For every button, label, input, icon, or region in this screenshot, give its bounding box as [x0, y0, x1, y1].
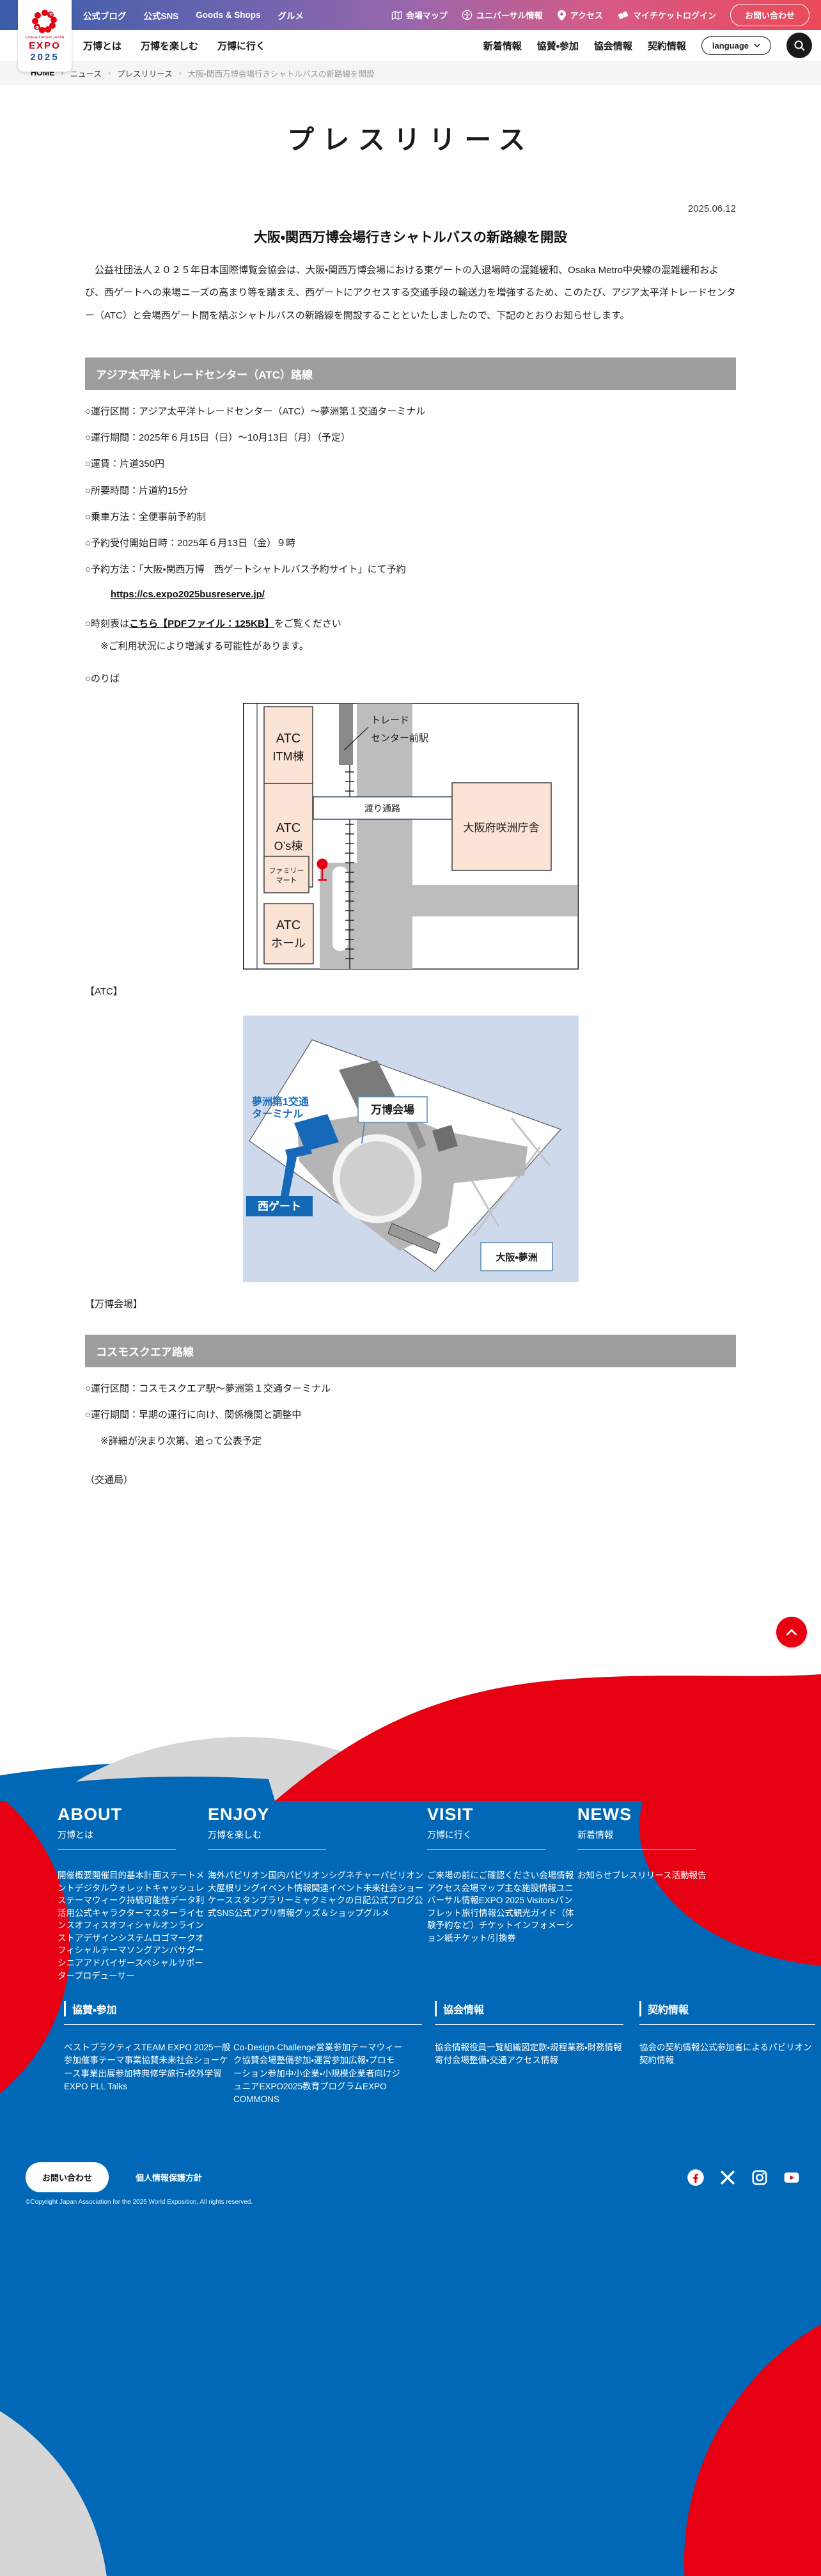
footer-link[interactable]: デザインシステム: [84, 1933, 153, 1943]
footer-link[interactable]: ミャクミャクの日記: [293, 1896, 371, 1905]
atc-area-map: 渡り通路 ATC ITM棟 ATC O’s棟 ファミリー マート ATC ホール…: [243, 703, 579, 970]
timetable-suffix: をご覧ください: [274, 618, 341, 629]
article-date: 2025.06.12: [85, 203, 736, 214]
atc-hall-label: ATC: [276, 918, 301, 932]
myaku-myaku-logo-icon: [32, 9, 58, 35]
route-detail-item: ○乗車方法：全便事前予約制: [85, 510, 736, 524]
atc-map-figure: 渡り通路 ATC ITM棟 ATC O’s棟 ファミリー マート ATC ホール…: [243, 703, 579, 973]
breadcrumb-separator: ›: [108, 68, 111, 77]
footer-main: ABOUT 万博とは 開催概要開催目的基本計画ステートメントデジタルウォレットキ…: [0, 1801, 821, 2576]
contact-button[interactable]: お問い合わせ: [730, 4, 809, 26]
divider: [577, 1850, 696, 1850]
timetable-prefix: ○時刻表は: [85, 618, 129, 629]
terminal-label: ターミナル: [252, 1108, 303, 1120]
footer-link[interactable]: 業務・財務情報: [567, 2043, 622, 2052]
footer-link[interactable]: 営業参加: [316, 2043, 350, 2052]
footer-link[interactable]: Co-Design-Challenge: [233, 2043, 316, 2052]
footer-link[interactable]: 会場整備・交通アクセス情報: [452, 2055, 558, 2065]
main-nav-link[interactable]: 新着情報: [483, 39, 522, 52]
divider: [208, 1850, 326, 1850]
footer-column-title: NEWS: [577, 1805, 718, 1825]
instagram-icon[interactable]: [751, 2169, 769, 2187]
cosmo-note: ※詳細が決まり次第、追って公表予定: [100, 1434, 736, 1447]
main-nav-link[interactable]: 契約情報: [648, 39, 686, 52]
footer-link[interactable]: シグネチャーパビリオン: [329, 1871, 423, 1880]
footer-sections: 協賛・参加 ベストプラクティスTEAM EXPO 2025一般参加催事テーマ事業…: [0, 1982, 821, 2106]
youtube-icon[interactable]: [783, 2169, 801, 2187]
site-header: OSAKA,KANSAI,JAPAN EXPO 2025 公式ブログ公式SNSG…: [0, 0, 821, 85]
area-label: 大阪・夢洲: [496, 1252, 537, 1263]
breadcrumb-news[interactable]: ニュース: [70, 67, 102, 79]
topbar-link[interactable]: グルメ: [278, 9, 304, 22]
footer-link[interactable]: イベント情報: [260, 1883, 311, 1893]
footer-column-news: NEWS 新着情報 お知らせプレスリリース活動報告: [577, 1805, 718, 1982]
venue-map: 夢洲第1交通 ターミナル 万博会場 西ゲート 大阪・夢洲: [243, 1016, 579, 1282]
footer-link[interactable]: 活動報告: [672, 1871, 707, 1880]
footer-link[interactable]: 国内パビリオン: [269, 1871, 329, 1880]
pref-office-label: 大阪府咲洲庁舎: [463, 822, 539, 834]
footer-link[interactable]: 海外パビリオン: [208, 1871, 269, 1880]
route-detail-item: ○運賃：片道350円: [85, 457, 736, 471]
footer-link[interactable]: 中小企業・小規模企業者向け: [285, 2069, 392, 2078]
corridor-label: 渡り通路: [364, 803, 400, 813]
cosmo-route-details: ○運行区間：コスモスクエア駅〜夢洲第１交通ターミナル○運行期間：早期の運行に向け…: [85, 1381, 736, 1423]
road-horizontal: [412, 885, 577, 916]
venue-label: 万博会場: [370, 1103, 414, 1116]
footer-link[interactable]: ベストプラクティス: [64, 2043, 141, 2052]
language-selector[interactable]: language: [701, 36, 771, 55]
divider: [427, 1850, 545, 1850]
footer-column-title: VISIT: [427, 1805, 577, 1825]
facebook-icon[interactable]: [687, 2169, 705, 2187]
scroll-to-top-button[interactable]: [776, 1617, 807, 1647]
footer-link[interactable]: 持続可能性: [127, 1896, 170, 1905]
footer-link[interactable]: プレスリリース: [612, 1871, 672, 1880]
timetable-pdf-link[interactable]: こちら【PDFファイル：125KB】: [129, 618, 274, 629]
top-gradient-bar: OSAKA,KANSAI,JAPAN EXPO 2025 公式ブログ公式SNSG…: [0, 0, 821, 30]
department-label: （交通局）: [85, 1473, 736, 1486]
chevron-down-icon: [754, 43, 760, 47]
footer-link[interactable]: 協会情報: [435, 2043, 469, 2052]
footer-link[interactable]: 関連イベント: [311, 1883, 363, 1893]
route-detail-item: ○運行期間：早期の運行に向け、関係機関と調整中: [85, 1408, 736, 1422]
topbar-link[interactable]: 公式ブログ: [83, 9, 127, 22]
expo-logo[interactable]: OSAKA,KANSAI,JAPAN EXPO 2025: [18, 0, 72, 72]
timetable-note: ※ご利用状況により増減する可能性があります。: [100, 639, 736, 652]
footer-link[interactable]: アクセス: [427, 1883, 461, 1893]
breadcrumb-separator: ›: [179, 68, 182, 77]
footer-link[interactable]: 寄付: [435, 2055, 452, 2065]
footer-link[interactable]: 役員一覧: [469, 2043, 504, 2052]
logo-expo-text: EXPO: [29, 41, 61, 52]
atc-os-label: O’s棟: [274, 840, 302, 852]
divider: [58, 1850, 176, 1850]
topbar-utility: 会場マップ ユニバーサル情報 アクセス マイチケットログイン お問い合わせ: [391, 4, 809, 26]
footer-link[interactable]: ご来場の前にご確認ください: [427, 1871, 539, 1880]
familymart-label: ファミリー: [269, 867, 304, 875]
footer-link[interactable]: TEAM EXPO 2025: [141, 2043, 214, 2052]
footer-link[interactable]: スタンプラリー: [233, 1896, 293, 1905]
footer-link[interactable]: 開催目的: [92, 1871, 127, 1880]
logo-subtitle: OSAKA,KANSAI,JAPAN: [25, 36, 64, 40]
reservation-url-line: https://cs.expo2025busreserve.jp/: [111, 589, 736, 600]
ticket-icon: [617, 10, 629, 20]
footer-column-subtitle: 万博とは: [58, 1828, 208, 1841]
privacy-policy-link[interactable]: 個人情報保護方針: [136, 2171, 202, 2183]
cosmo-route-heading: コスモスクエア路線: [85, 1335, 736, 1367]
search-button[interactable]: [786, 33, 812, 58]
timetable-line: ○時刻表はこちら【PDFファイル：125KB】をご覧ください: [85, 617, 736, 630]
topbar-link[interactable]: 公式SNS: [144, 9, 179, 22]
footer-columns: ABOUT 万博とは 開催概要開催目的基本計画ステートメントデジタルウォレットキ…: [0, 1801, 821, 1982]
route-detail-item: ○運行期間：2025年６月15日（日）〜10月13日（月）（予定）: [85, 430, 736, 445]
footer-link[interactable]: 参加特典: [115, 2069, 150, 2078]
atc-itm-label: ATC: [276, 732, 301, 746]
footer-link[interactable]: お知らせ: [577, 1871, 612, 1880]
breadcrumb-press[interactable]: プレスリリース: [117, 67, 173, 79]
breadcrumb: HOME › ニュース › プレスリリース › 大阪・関西万博会場行きシャトルバ…: [0, 61, 821, 85]
divider: [639, 2024, 815, 2025]
footer-link[interactable]: EXPO 2025 Visitors: [479, 1896, 555, 1905]
footer-link[interactable]: プロデューサー: [74, 1971, 134, 1981]
x-icon[interactable]: [719, 2169, 737, 2187]
reservation-url-link[interactable]: https://cs.expo2025busreserve.jp/: [111, 589, 265, 600]
main-nav-left: 万博とは万博を楽しむ万博に行く: [83, 39, 265, 52]
familymart-label: マート: [276, 877, 297, 884]
footer-section-title: 協会情報: [435, 2001, 623, 2016]
map-icon: [391, 10, 402, 20]
language-label: language: [712, 41, 749, 51]
main-nav-link[interactable]: 万博に行く: [217, 39, 265, 52]
footer-link[interactable]: ロゴマーク: [152, 1933, 196, 1943]
footer-link[interactable]: 修学旅行・校外学習: [150, 2069, 222, 2078]
footer-link[interactable]: 組織図: [504, 2043, 530, 2052]
route-detail-item: ○予約受付開始日時：2025年６月13日（金）９時: [85, 536, 736, 551]
logo-year-text: 2025: [30, 52, 59, 63]
footer-link[interactable]: EXPO PLL Talks: [64, 2082, 127, 2091]
station-label: センター前駅: [371, 733, 428, 744]
search-icon: [794, 40, 806, 52]
utility-label: 会場マップ: [406, 9, 448, 21]
main-nav-right-links: 新着情報協賛・参加協会情報契約情報: [483, 39, 686, 52]
breadcrumb-current: 大阪・関西万博会場行きシャトルバスの新路線を開設: [188, 67, 375, 79]
atc-route-details: ○運行区間：アジア太平洋トレードセンター（ATC）〜夢洲第１交通ターミナル○運行…: [85, 404, 736, 577]
footer-link[interactable]: グッズ＆ショップ: [295, 1908, 364, 1918]
route-detail-item: ○運行区間：アジア太平洋トレードセンター（ATC）〜夢洲第１交通ターミナル: [85, 404, 736, 419]
boarding-point-label: ○のりば: [85, 671, 736, 685]
site-footer: ABOUT 万博とは 開催概要開催目的基本計画ステートメントデジタルウォレットキ…: [0, 1654, 821, 2576]
footer-link[interactable]: 定款・規程: [530, 2043, 568, 2052]
footer-bottom-bar: お問い合わせ 個人情報保護方針: [0, 2162, 821, 2192]
venue-map-figure: 夢洲第1交通 ターミナル 万博会場 西ゲート 大阪・夢洲: [243, 1016, 579, 1285]
article-title: 大阪・関西万博会場行きシャトルバスの新路線を開設: [85, 227, 736, 246]
footer-link[interactable]: シニアアドバイザー: [58, 1958, 135, 1968]
universal-icon: [462, 10, 473, 20]
venue-map-utility[interactable]: 会場マップ: [391, 9, 448, 21]
atc-os-label: ATC: [276, 821, 301, 835]
route-detail-item: ○所要時間：片道約15分: [85, 483, 736, 498]
footer-link[interactable]: 協会の契約情報: [639, 2043, 700, 2052]
route-detail-item: ○予約方法：「大阪・関西万博 西ゲートシャトルバス予約サイト」にて予約: [85, 562, 736, 577]
footer-column-title: ENJOY: [208, 1805, 427, 1825]
footer-column-enjoy: ENJOY 万博を楽しむ 海外パビリオン国内パビリオンシグネチャーパビリオン大屋…: [208, 1805, 427, 1982]
footer-column-subtitle: 新着情報: [577, 1828, 718, 1841]
footer-wave: [0, 1654, 821, 1801]
station-label: トレード: [371, 715, 409, 726]
footer-link[interactable]: 公式キャラクター: [75, 1908, 143, 1918]
footer-link[interactable]: 基本計画: [127, 1871, 161, 1880]
atc-hall-building: [264, 904, 313, 964]
access-utility[interactable]: アクセス: [557, 9, 603, 21]
main-nav-right: 新着情報協賛・参加協会情報契約情報 language: [483, 33, 812, 58]
footer-column-visit: VISIT 万博に行く ご来場の前にご確認ください会場情報アクセス会場マップ主な…: [427, 1805, 577, 1982]
footer-column-subtitle: 万博を楽しむ: [208, 1828, 427, 1841]
footer-column-about: ABOUT 万博とは 開催概要開催目的基本計画ステートメントデジタルウォレットキ…: [58, 1805, 208, 1982]
universal-info-utility[interactable]: ユニバーサル情報: [462, 9, 543, 21]
footer-link[interactable]: 会場情報: [539, 1871, 574, 1880]
my-ticket-login-utility[interactable]: マイチケットログイン: [617, 9, 716, 21]
footer-link[interactable]: 旅行情報: [462, 1908, 496, 1918]
footer-column-subtitle: 万博に行く: [427, 1828, 577, 1841]
divider: [64, 2024, 422, 2025]
topbar-link[interactable]: Goods & Shops: [196, 10, 260, 20]
footer-section-contract: 契約情報 協会の契約情報公式参加者によるパビリオン契約情報: [639, 2001, 815, 2106]
atc-itm-label: ITM棟: [272, 750, 304, 763]
footer-link[interactable]: 会場マップ: [461, 1883, 504, 1893]
footer-column-title: ABOUT: [58, 1805, 208, 1825]
copyright-text: ©Copyright Japan Association for the 202…: [0, 2192, 821, 2220]
atc-map-caption: 【ATC】: [85, 984, 736, 998]
main-content: プレスリリース 2025.06.12 大阪・関西万博会場行きシャトルバスの新路線…: [85, 118, 736, 1654]
loop-island: [332, 867, 348, 951]
footer-link[interactable]: 公式ブログ: [371, 1896, 414, 1905]
trade-center-mae-station-shape: [339, 703, 353, 765]
footer-link[interactable]: 紙チケット/引換券: [444, 1933, 516, 1943]
topbar-links: 公式ブログ公式SNSGoods & Shopsグルメ: [83, 9, 304, 22]
main-nav-bar: 万博とは万博を楽しむ万博に行く 新着情報協賛・参加協会情報契約情報 langua…: [0, 30, 821, 61]
location-pin-icon: [557, 10, 567, 21]
atc-hall-label: ホール: [271, 937, 306, 950]
footer-link[interactable]: アンバサダー: [152, 1945, 203, 1955]
footer-link[interactable]: 公式アプリ情報: [234, 1908, 295, 1918]
main-nav-link[interactable]: 万博とは: [83, 39, 121, 52]
footer-link[interactable]: デジタルウォレット: [75, 1883, 152, 1893]
terminal-label: 夢洲第1交通: [252, 1096, 309, 1108]
footer-gray-circle-bottomleft: [0, 2376, 109, 2576]
main-nav-link[interactable]: 万博を楽しむ: [141, 39, 198, 52]
footer-contact-button[interactable]: お問い合わせ: [26, 2162, 109, 2192]
main-nav-link[interactable]: 協会情報: [594, 39, 632, 52]
footer-link[interactable]: テーマウィーク: [66, 1896, 127, 1905]
footer-link[interactable]: 大屋根リング: [208, 1883, 260, 1893]
divider: [435, 2024, 623, 2025]
venue-map-caption: 【万博会場】: [85, 1297, 736, 1310]
footer-wave-zone: [0, 1654, 821, 1801]
footer-link[interactable]: 主な施設情報: [504, 1883, 556, 1893]
footer-red-circle-bottomright: [684, 2287, 821, 2576]
main-nav-link[interactable]: 協賛・参加: [537, 39, 579, 52]
footer-link[interactable]: テーマ事業協賛: [98, 2055, 159, 2065]
grand-ring: [336, 1138, 418, 1220]
utility-label: ユニバーサル情報: [476, 9, 543, 21]
utility-label: マイチケットログイン: [633, 9, 716, 21]
footer-section-association: 協会情報 協会情報役員一覧組織図定款・規程業務・財務情報寄付会場整備・交通アクセ…: [435, 2001, 623, 2106]
footer-section-title: 協賛・参加: [64, 2001, 422, 2016]
west-gate-label: 西ゲート: [258, 1200, 301, 1213]
footer-section-title: 契約情報: [639, 2001, 815, 2016]
social-links: [687, 2169, 808, 2187]
utility-label: アクセス: [570, 9, 603, 21]
chevron-up-icon: [786, 1629, 797, 1636]
page-title: プレスリリース: [85, 118, 736, 157]
article-intro: 公益社団法人２０２５年日本国際博覧会協会は、大阪・関西万博会場における東ゲートの…: [85, 259, 736, 327]
footer-link[interactable]: グルメ: [364, 1908, 390, 1918]
route-detail-item: ○運行区間：コスモスクエア駅〜夢洲第１交通ターミナル: [85, 1381, 736, 1396]
footer-section-sponsor: 協賛・参加 ベストプラクティスTEAM EXPO 2025一般参加催事テーマ事業…: [64, 2001, 422, 2106]
footer-link[interactable]: 開催概要: [58, 1871, 92, 1880]
atc-route-heading: アジア太平洋トレードセンター（ATC）路線: [85, 357, 736, 390]
footer-link[interactable]: 会場整備参加・運営参加: [260, 2055, 349, 2065]
